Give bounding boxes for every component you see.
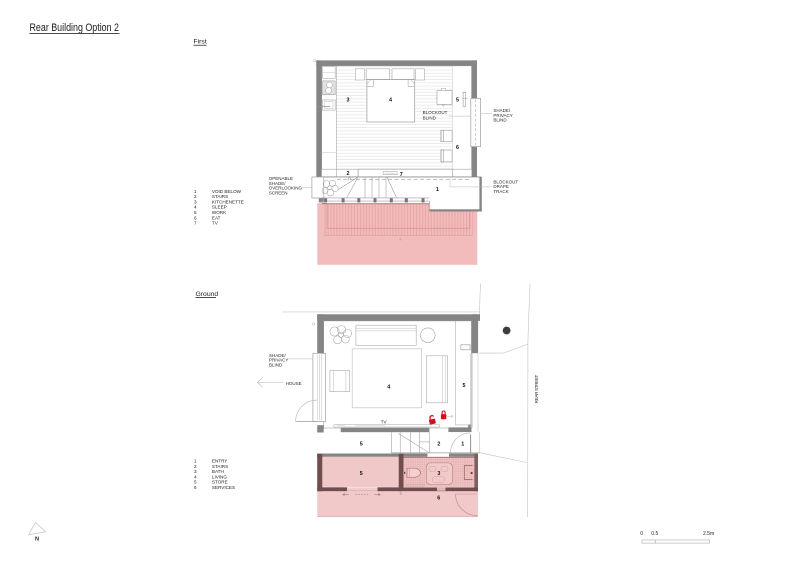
svg-text:6: 6 — [194, 215, 197, 220]
svg-text:5: 5 — [463, 383, 466, 389]
svg-text:SERVICES: SERVICES — [212, 485, 235, 490]
svg-text:BLIND: BLIND — [493, 118, 507, 123]
svg-text:SCREEN: SCREEN — [269, 191, 288, 196]
svg-text:7: 7 — [400, 172, 403, 178]
svg-text:BLIND: BLIND — [423, 116, 437, 121]
svg-text:3: 3 — [437, 471, 440, 477]
svg-text:STAIRS: STAIRS — [212, 464, 228, 469]
svg-text:4: 4 — [194, 205, 197, 210]
svg-text:Ground: Ground — [196, 291, 219, 298]
svg-text:2.5m: 2.5m — [703, 531, 714, 537]
svg-text:4: 4 — [387, 384, 390, 390]
svg-text:2: 2 — [437, 441, 440, 447]
svg-text:5: 5 — [194, 210, 197, 215]
svg-text:SLEEP: SLEEP — [212, 205, 227, 210]
svg-text:1: 1 — [436, 187, 439, 193]
svg-text:6: 6 — [194, 485, 197, 490]
svg-text:4: 4 — [389, 97, 392, 103]
svg-text:HOUSE: HOUSE — [286, 381, 302, 386]
svg-text:KITCHENETTE: KITCHENETTE — [212, 199, 244, 204]
svg-text:1: 1 — [461, 441, 464, 447]
svg-text:1: 1 — [194, 189, 197, 194]
svg-text:2: 2 — [194, 464, 197, 469]
svg-text:First: First — [194, 39, 207, 46]
svg-text:TV: TV — [212, 221, 219, 226]
svg-text:STAIRS: STAIRS — [212, 194, 228, 199]
svg-text:REAR STREET: REAR STREET — [534, 374, 539, 403]
svg-text:0.5: 0.5 — [651, 531, 658, 537]
svg-text:BLOCKOUT: BLOCKOUT — [423, 110, 448, 115]
svg-text:5: 5 — [360, 471, 363, 477]
svg-text:5: 5 — [360, 441, 363, 447]
svg-text:BLIND: BLIND — [269, 363, 283, 368]
svg-text:STORE: STORE — [212, 480, 228, 485]
svg-text:5: 5 — [194, 480, 197, 485]
svg-text:4: 4 — [194, 474, 197, 479]
svg-text:EAT: EAT — [212, 215, 221, 220]
svg-text:1: 1 — [194, 459, 197, 464]
svg-text:LIVING: LIVING — [212, 474, 227, 479]
svg-text:6: 6 — [456, 145, 459, 151]
svg-text:Rear Building Option 2: Rear Building Option 2 — [30, 22, 120, 34]
svg-text:2: 2 — [194, 194, 197, 199]
svg-text:WORK: WORK — [212, 210, 227, 215]
svg-text:6: 6 — [437, 495, 440, 501]
svg-text:3: 3 — [347, 97, 350, 103]
svg-text:ENTRY: ENTRY — [212, 459, 228, 464]
svg-text:5: 5 — [456, 97, 459, 103]
svg-text:2: 2 — [347, 171, 350, 177]
svg-text:0: 0 — [640, 531, 643, 537]
svg-text:BATH: BATH — [212, 469, 224, 474]
svg-text:TRACK: TRACK — [493, 189, 508, 194]
svg-text:3: 3 — [194, 199, 197, 204]
svg-text:3: 3 — [194, 469, 197, 474]
svg-text:7: 7 — [194, 221, 197, 226]
svg-text:TV: TV — [381, 419, 387, 424]
svg-text:VOID BELOW: VOID BELOW — [212, 189, 242, 194]
svg-text:N: N — [35, 537, 39, 543]
